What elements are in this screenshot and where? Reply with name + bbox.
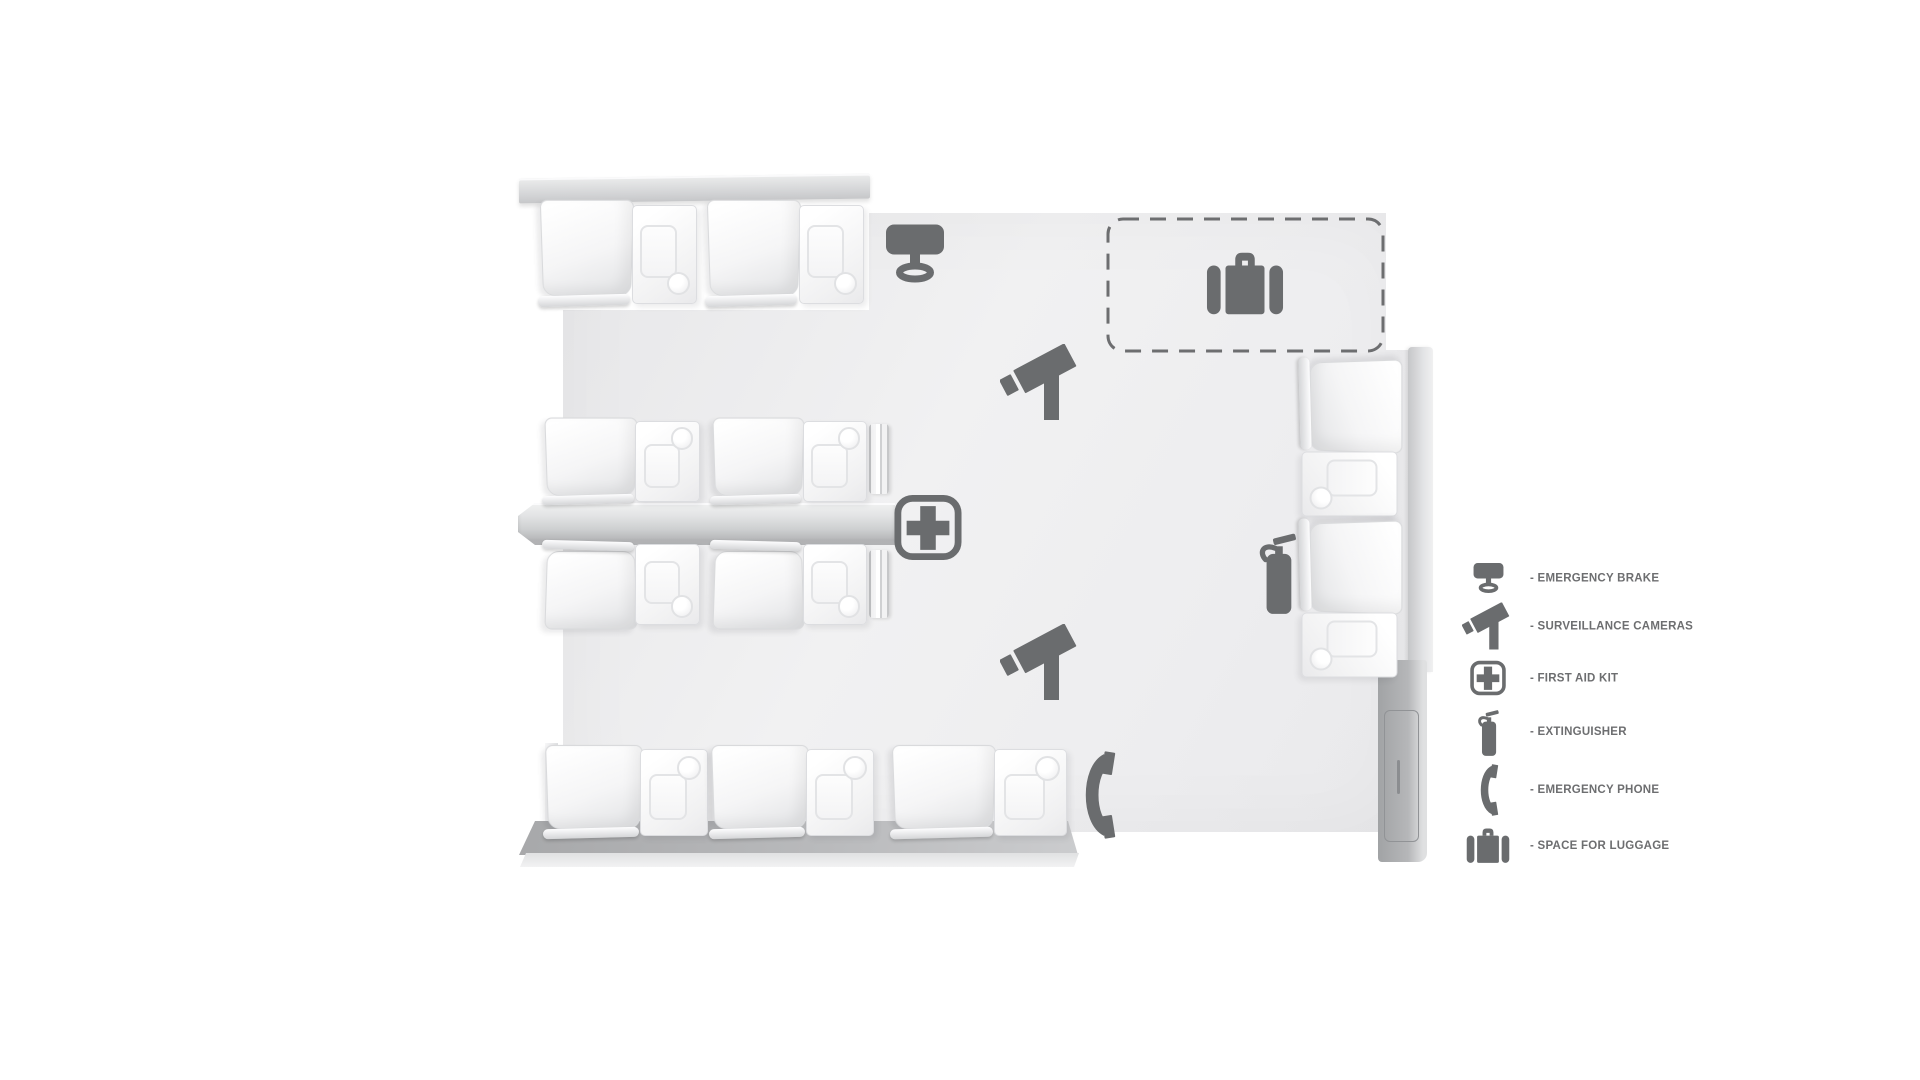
seat-base	[799, 205, 864, 304]
emergency-phone-icon	[1458, 764, 1518, 816]
seat-pair	[1302, 363, 1399, 517]
legend-item-emergency-brake: - EMERGENCY BRAKE	[1458, 561, 1659, 596]
surveillance-camera-icon	[1458, 603, 1518, 650]
door-outline	[1384, 710, 1419, 842]
legend-item-extinguisher: - EXTINGUISHER	[1458, 707, 1627, 757]
luggage-space-icon	[1206, 251, 1284, 317]
seat-partition	[869, 424, 889, 494]
seat-base	[635, 421, 700, 503]
door-handle	[1397, 760, 1400, 794]
seat-cushion-edge	[1298, 358, 1311, 451]
seat-pair	[715, 543, 867, 625]
emergency-brake-icon	[1458, 561, 1518, 596]
legend-label: - FIRST AID KIT	[1530, 672, 1618, 684]
luggage-space-icon	[1458, 828, 1518, 864]
seat-pair	[715, 420, 867, 502]
seat-cushion	[1004, 774, 1045, 821]
legend-label: - EXTINGUISHER	[1530, 726, 1627, 738]
seat-cushion	[640, 225, 677, 278]
seat-detail-circle	[838, 595, 861, 618]
surveillance-camera-icon	[1000, 624, 1084, 700]
seat-detail-circle	[1035, 756, 1060, 781]
emergency-phone-icon	[1080, 751, 1116, 839]
legend-label: - SURVEILLANCE CAMERAS	[1530, 620, 1693, 632]
seat-backrest	[711, 745, 809, 829]
bottom-base-front-edge	[516, 853, 1079, 867]
seat-backrest	[712, 551, 804, 629]
seat-base	[994, 749, 1067, 836]
right-door-panel	[1378, 660, 1427, 862]
seat-detail-circle	[843, 756, 867, 780]
legend-item-emergency-phone: - EMERGENCY PHONE	[1458, 764, 1659, 816]
seat-cushion	[811, 444, 847, 488]
seat-base	[806, 749, 874, 836]
seat-cushion-edge	[705, 294, 798, 307]
seat-detail-circle	[667, 272, 690, 295]
seat-backrest	[545, 745, 643, 829]
surveillance-camera-icon	[1000, 344, 1084, 420]
seat-base	[803, 544, 867, 626]
seat-cushion	[644, 444, 681, 488]
seat-detail-circle	[838, 427, 861, 450]
legend-item-surveillance-cameras: - SURVEILLANCE CAMERAS	[1458, 603, 1693, 650]
extinguisher-icon	[1458, 707, 1518, 757]
seat-backrest	[1309, 520, 1402, 615]
first-aid-kit-icon	[894, 494, 962, 561]
seat-pair	[543, 204, 697, 304]
seat-cushion	[815, 774, 853, 821]
seat-cushion-edge	[538, 294, 631, 307]
seat-cushion	[1327, 621, 1378, 658]
right-wall	[1408, 347, 1433, 672]
seat-base	[635, 544, 700, 626]
seat-cushion-edge	[710, 540, 801, 551]
seat-pair	[710, 204, 864, 304]
seat-backrest	[544, 417, 637, 495]
seat-backrest	[712, 417, 804, 495]
seat-backrest	[707, 200, 802, 296]
legend: - EMERGENCY BRAKE - SURVEILLANCE CAMERAS…	[1458, 545, 1758, 875]
seat-detail-circle	[1310, 648, 1333, 671]
seat-detail-circle	[671, 595, 694, 618]
seat-base	[1301, 612, 1397, 677]
seat-backrest	[540, 200, 635, 296]
seat-cushion	[1327, 460, 1378, 497]
seat-pair	[547, 420, 700, 502]
seat-cushion-edge	[542, 493, 634, 504]
seat-cushion-edge	[1298, 519, 1311, 612]
extinguisher-icon	[1258, 526, 1298, 618]
emergency-brake-icon	[883, 221, 947, 286]
seat-pair	[547, 543, 700, 625]
seat-partition	[869, 550, 889, 618]
seat-backrest	[544, 551, 637, 629]
seat-base	[640, 749, 708, 836]
seat-backrest	[1309, 359, 1402, 454]
legend-item-space-for-luggage: - SPACE FOR LUGGAGE	[1458, 828, 1669, 864]
first-aid-kit-icon	[1458, 661, 1518, 696]
seat-cushion-edge	[710, 493, 801, 504]
middle-divider-bar	[518, 503, 895, 545]
seat-pair	[895, 748, 1067, 836]
seat-detail-circle	[677, 756, 701, 780]
seat-cushion-edge	[542, 540, 634, 551]
seat-base	[1301, 451, 1397, 516]
seat-backrest	[892, 745, 997, 829]
seat-pair	[714, 748, 874, 836]
seat-cushion	[649, 774, 687, 821]
seat-base	[632, 205, 697, 304]
seat-cushion	[807, 225, 844, 278]
seat-pair	[1302, 524, 1399, 678]
seat-detail-circle	[834, 272, 857, 295]
legend-item-first-aid-kit: - FIRST AID KIT	[1458, 661, 1618, 696]
legend-label: - SPACE FOR LUGGAGE	[1530, 840, 1669, 852]
train-car-floor-plan: - EMERGENCY BRAKE - SURVEILLANCE CAMERAS…	[0, 0, 1920, 1080]
legend-label: - EMERGENCY PHONE	[1530, 784, 1659, 796]
legend-label: - EMERGENCY BRAKE	[1530, 572, 1659, 584]
seat-pair	[548, 748, 708, 836]
seat-detail-circle	[671, 427, 694, 450]
seat-detail-circle	[1310, 487, 1333, 510]
seat-base	[803, 421, 867, 503]
